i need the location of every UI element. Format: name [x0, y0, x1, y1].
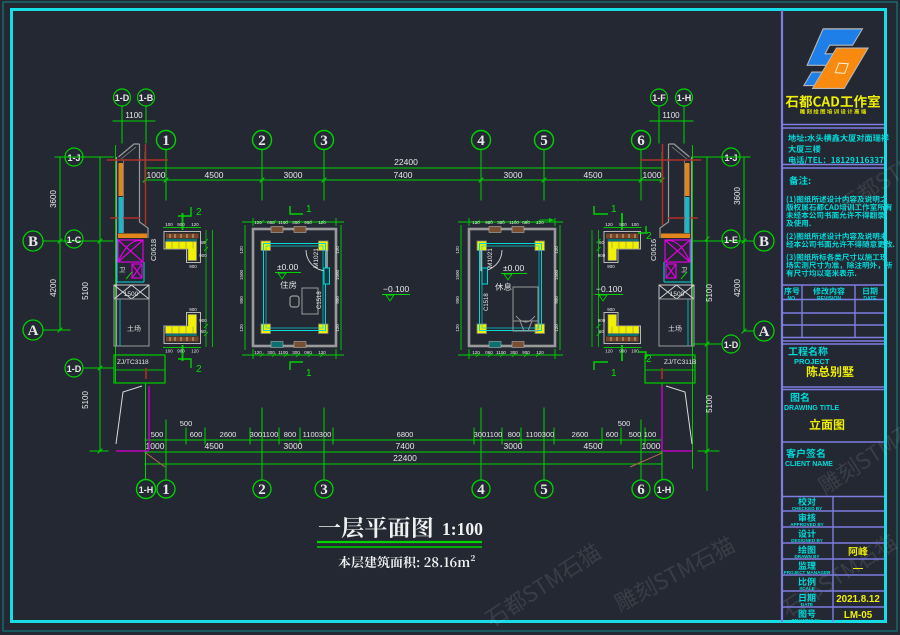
svg-text:60: 60 — [200, 329, 206, 334]
svg-text:APPROVED BY: APPROVED BY — [790, 522, 823, 527]
svg-text:—: — — [853, 563, 863, 574]
svg-text:3600: 3600 — [733, 187, 742, 205]
svg-text:REVISION: REVISION — [817, 296, 841, 302]
svg-text:−0.100: −0.100 — [596, 284, 623, 294]
svg-text:DATE: DATE — [863, 296, 877, 302]
svg-text:−0.100: −0.100 — [383, 284, 410, 294]
svg-text:1-D: 1-D — [115, 93, 130, 103]
svg-text:300: 300 — [510, 350, 518, 355]
svg-text:3001100: 3001100 — [250, 430, 279, 439]
svg-text:2: 2 — [646, 231, 652, 242]
svg-text:060: 060 — [267, 220, 275, 225]
svg-text:5: 5 — [540, 133, 548, 149]
svg-text:1500: 1500 — [124, 291, 139, 298]
svg-text:2600: 2600 — [220, 430, 237, 439]
svg-text:DESIGNED BY: DESIGNED BY — [791, 538, 823, 543]
svg-text:3: 3 — [320, 482, 328, 498]
svg-text:1: 1 — [611, 204, 617, 215]
svg-text:900: 900 — [522, 350, 530, 355]
svg-text:120: 120 — [605, 349, 613, 354]
svg-text:CHECKED BY: CHECKED BY — [792, 506, 822, 511]
svg-text:3000: 3000 — [504, 170, 523, 180]
svg-text:DATE: DATE — [801, 602, 813, 607]
svg-text:1000: 1000 — [642, 441, 661, 451]
svg-text:120: 120 — [335, 246, 340, 254]
svg-text:120: 120 — [318, 220, 326, 225]
svg-text:900: 900 — [199, 253, 207, 258]
svg-text:4500: 4500 — [584, 170, 603, 180]
svg-text:500: 500 — [629, 430, 642, 439]
svg-text:1100: 1100 — [496, 350, 506, 355]
svg-text:6: 6 — [637, 482, 645, 498]
svg-text:120: 120 — [254, 350, 262, 355]
svg-text:A: A — [759, 324, 770, 340]
svg-text:120: 120 — [536, 350, 544, 355]
svg-text:C0616: C0616 — [649, 239, 658, 261]
svg-text:900: 900 — [598, 253, 606, 258]
svg-text:900: 900 — [189, 264, 197, 269]
svg-text:B: B — [759, 234, 769, 250]
svg-text:1: 1 — [162, 482, 170, 498]
svg-text:C1518: C1518 — [317, 291, 323, 309]
svg-text:1-H: 1-H — [657, 485, 672, 495]
svg-text:1: 1 — [306, 368, 312, 379]
svg-text:4500: 4500 — [205, 441, 224, 451]
svg-text:900: 900 — [199, 318, 207, 323]
svg-text:1500: 1500 — [455, 269, 460, 280]
svg-text:300: 300 — [292, 350, 300, 355]
svg-text:120: 120 — [191, 349, 199, 354]
svg-text:600: 600 — [190, 430, 203, 439]
svg-text:PROJECT MANAGER: PROJECT MANAGER — [784, 570, 831, 575]
svg-text:1100300: 1100300 — [303, 430, 332, 439]
svg-text:1100: 1100 — [278, 350, 288, 355]
svg-text:3000: 3000 — [504, 441, 523, 451]
svg-text:1-H: 1-H — [677, 93, 692, 103]
svg-text:22400: 22400 — [393, 453, 417, 463]
svg-text:100: 100 — [631, 349, 639, 354]
svg-text:±0.00: ±0.00 — [503, 263, 524, 273]
svg-text:7400: 7400 — [396, 441, 415, 451]
svg-text:900: 900 — [189, 307, 197, 312]
svg-text:1100: 1100 — [278, 220, 288, 225]
svg-text:900: 900 — [335, 296, 340, 304]
svg-text:1: 1 — [306, 204, 312, 215]
svg-text:1-J: 1-J — [724, 153, 737, 163]
svg-text:120: 120 — [318, 350, 326, 355]
svg-text:300: 300 — [497, 220, 505, 225]
svg-text:900: 900 — [607, 264, 615, 269]
svg-text:M1021: M1021 — [487, 248, 494, 268]
svg-text:±0.00: ±0.00 — [277, 262, 298, 272]
svg-text:SCALE: SCALE — [799, 586, 815, 591]
svg-text:500: 500 — [151, 430, 164, 439]
svg-text:120: 120 — [536, 220, 544, 225]
svg-text:1-D: 1-D — [67, 364, 82, 374]
svg-text:60: 60 — [599, 240, 605, 245]
svg-text:300: 300 — [292, 220, 300, 225]
svg-text:300: 300 — [267, 350, 275, 355]
svg-text:2: 2 — [196, 364, 202, 375]
svg-text:4500: 4500 — [584, 441, 603, 451]
svg-text:900: 900 — [455, 296, 460, 304]
svg-text:DRAWN BY: DRAWN BY — [794, 554, 819, 559]
svg-text:900: 900 — [177, 222, 185, 227]
svg-text:6800: 6800 — [397, 430, 414, 439]
svg-text:800: 800 — [284, 430, 297, 439]
svg-text:1: 1 — [162, 133, 170, 149]
svg-text:2021.8.12: 2021.8.12 — [836, 594, 880, 605]
svg-text:100: 100 — [165, 349, 173, 354]
svg-text:500: 500 — [618, 419, 631, 428]
svg-text:120: 120 — [472, 350, 480, 355]
svg-text:DRAWING TITLE: DRAWING TITLE — [784, 405, 840, 412]
svg-text:900: 900 — [177, 349, 185, 354]
svg-text:1500: 1500 — [239, 269, 244, 280]
svg-text:120: 120 — [605, 222, 613, 227]
svg-text:2: 2 — [258, 133, 266, 149]
svg-text:4500: 4500 — [205, 170, 224, 180]
svg-text:1-C: 1-C — [67, 235, 82, 245]
svg-text:2600: 2600 — [572, 430, 589, 439]
svg-text:A: A — [28, 323, 39, 339]
svg-text:2: 2 — [196, 207, 202, 218]
svg-text:M1021: M1021 — [313, 248, 320, 268]
svg-text:3000: 3000 — [284, 441, 303, 451]
svg-text:060: 060 — [304, 350, 312, 355]
svg-text:3600: 3600 — [49, 190, 58, 208]
svg-text:900: 900 — [554, 296, 559, 304]
svg-text:120: 120 — [554, 246, 559, 254]
svg-text:DRAWING No.: DRAWING No. — [792, 618, 823, 623]
svg-text:NO.: NO. — [788, 296, 798, 302]
svg-text:900: 900 — [607, 307, 615, 312]
svg-text:1-D: 1-D — [724, 340, 739, 350]
svg-text:5100: 5100 — [705, 395, 714, 413]
svg-text:100: 100 — [631, 222, 639, 227]
svg-text:120: 120 — [554, 324, 559, 332]
svg-text:100: 100 — [644, 430, 657, 439]
svg-text:1500: 1500 — [335, 269, 340, 280]
svg-text:500: 500 — [180, 419, 193, 428]
svg-text:5100: 5100 — [81, 391, 90, 409]
svg-text:900: 900 — [619, 222, 627, 227]
svg-text:120: 120 — [455, 246, 460, 254]
svg-text:120: 120 — [455, 324, 460, 332]
svg-text:120: 120 — [191, 222, 199, 227]
svg-text:6: 6 — [637, 133, 645, 149]
svg-text:1100300: 1100300 — [526, 430, 555, 439]
svg-text:800: 800 — [508, 430, 521, 439]
svg-text:C1518: C1518 — [484, 293, 490, 311]
svg-text:3001100: 3001100 — [474, 430, 503, 439]
svg-text:60: 60 — [599, 329, 605, 334]
svg-text:2: 2 — [258, 482, 266, 498]
svg-text:ZJ/TC3118: ZJ/TC3118 — [117, 359, 149, 366]
svg-text:4: 4 — [477, 482, 485, 498]
svg-text:1000: 1000 — [147, 170, 166, 180]
svg-text:1-E: 1-E — [724, 235, 738, 245]
svg-text:4200: 4200 — [49, 279, 58, 297]
svg-text:4: 4 — [477, 133, 485, 149]
svg-text:1-J: 1-J — [67, 153, 80, 163]
svg-text:1-F: 1-F — [652, 93, 666, 103]
svg-text:5100: 5100 — [81, 282, 90, 300]
svg-text:2: 2 — [646, 354, 652, 365]
svg-text:3000: 3000 — [284, 170, 303, 180]
svg-text:900: 900 — [619, 349, 627, 354]
svg-text:B: B — [28, 234, 38, 250]
svg-text:100: 100 — [165, 222, 173, 227]
svg-text:900: 900 — [239, 296, 244, 304]
svg-text:ZJ/TC311B: ZJ/TC311B — [664, 359, 696, 366]
svg-text:4200: 4200 — [733, 279, 742, 297]
svg-text:120: 120 — [472, 220, 480, 225]
svg-text:600: 600 — [606, 430, 619, 439]
svg-text:1:100: 1:100 — [442, 519, 483, 539]
svg-text:C0618: C0618 — [149, 239, 158, 261]
svg-text:120: 120 — [335, 324, 340, 332]
svg-text:900: 900 — [304, 220, 312, 225]
svg-text:120: 120 — [254, 220, 262, 225]
svg-text:060: 060 — [522, 220, 530, 225]
svg-text:1000: 1000 — [643, 170, 662, 180]
svg-text:1-B: 1-B — [139, 93, 154, 103]
svg-text:5: 5 — [540, 482, 548, 498]
svg-text:CLIENT NAME: CLIENT NAME — [785, 461, 833, 468]
svg-text:120: 120 — [239, 246, 244, 254]
svg-text:1100: 1100 — [125, 111, 143, 120]
svg-text:3: 3 — [320, 133, 328, 149]
svg-text:5100: 5100 — [705, 284, 714, 302]
svg-text:PROJECT: PROJECT — [794, 357, 830, 366]
svg-text:7400: 7400 — [394, 170, 413, 180]
svg-text:1-H: 1-H — [139, 485, 154, 495]
svg-text:60: 60 — [200, 240, 206, 245]
svg-text:900: 900 — [598, 318, 606, 323]
svg-text:1100: 1100 — [509, 220, 519, 225]
svg-text:1500: 1500 — [554, 269, 559, 280]
svg-text:900: 900 — [485, 220, 493, 225]
svg-text:1500: 1500 — [670, 291, 685, 298]
svg-text:120: 120 — [239, 324, 244, 332]
svg-text:1100: 1100 — [662, 111, 680, 120]
svg-text:LM-05: LM-05 — [844, 610, 873, 621]
svg-text:22400: 22400 — [394, 157, 418, 167]
svg-text:1: 1 — [611, 368, 617, 379]
svg-text:060: 060 — [485, 350, 493, 355]
